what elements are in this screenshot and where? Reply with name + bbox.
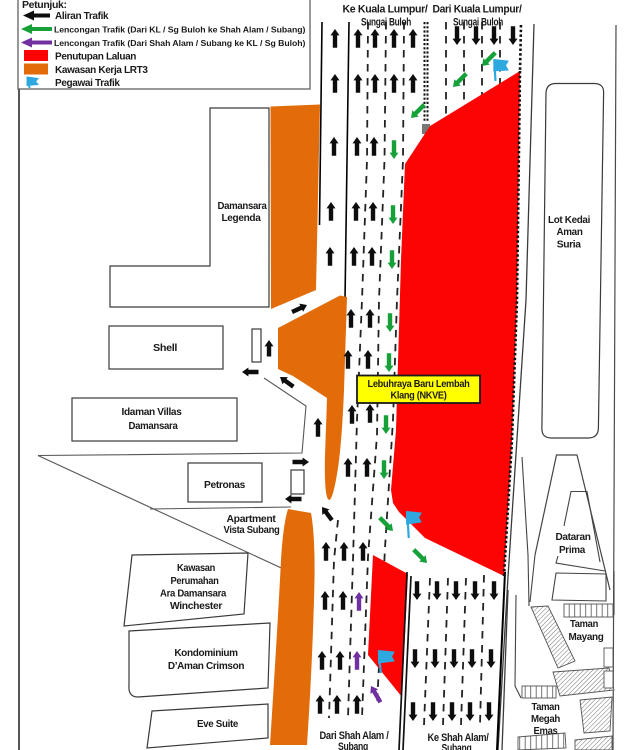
svg-text:Sungai Buloh: Sungai Buloh xyxy=(361,17,411,29)
svg-text:Lot Kedai: Lot Kedai xyxy=(548,214,590,226)
svg-text:Legenda: Legenda xyxy=(222,212,261,224)
svg-text:Aliran Trafik: Aliran Trafik xyxy=(55,11,109,22)
svg-text:Perumahan: Perumahan xyxy=(171,575,219,587)
svg-text:Kondominium: Kondominium xyxy=(174,648,238,659)
svg-text:Kawasan Kerja LRT3: Kawasan Kerja LRT3 xyxy=(55,65,148,76)
svg-text:Taman: Taman xyxy=(570,618,598,630)
svg-text:Petronas: Petronas xyxy=(204,479,245,491)
svg-text:Dari Kuala Lumpur/: Dari Kuala Lumpur/ xyxy=(433,4,522,16)
svg-text:Dataran: Dataran xyxy=(556,531,591,543)
svg-text:Eve Suite: Eve Suite xyxy=(197,718,238,730)
svg-text:Suria: Suria xyxy=(557,239,581,251)
svg-text:Ke Kuala Lumpur/: Ke Kuala Lumpur/ xyxy=(343,4,428,16)
svg-text:Shell: Shell xyxy=(153,342,177,354)
svg-text:Penutupan Laluan: Penutupan Laluan xyxy=(55,52,136,63)
svg-text:Pegawai Trafik: Pegawai Trafik xyxy=(55,78,120,89)
svg-text:Megah: Megah xyxy=(531,713,560,725)
svg-text:D’Aman Crimson: D’Aman Crimson xyxy=(168,661,244,672)
svg-text:Prima: Prima xyxy=(559,544,585,556)
svg-text:Mayang: Mayang xyxy=(569,631,604,643)
svg-text:Ara Damansara: Ara Damansara xyxy=(160,588,226,600)
svg-text:Subang: Subang xyxy=(338,741,368,750)
svg-text:Petunjuk:: Petunjuk: xyxy=(22,0,67,11)
svg-text:Damansara: Damansara xyxy=(129,420,178,432)
svg-text:Subang: Subang xyxy=(442,743,472,750)
svg-text:Idaman Villas: Idaman Villas xyxy=(122,406,182,418)
svg-text:Vista Subang: Vista Subang xyxy=(224,524,280,536)
svg-text:Aman: Aman xyxy=(557,226,583,238)
svg-text:Lencongan Trafik (Dari Shah Al: Lencongan Trafik (Dari Shah Alam / Suban… xyxy=(54,38,305,48)
svg-text:Damansara: Damansara xyxy=(218,200,267,212)
svg-text:Sungai Buloh: Sungai Buloh xyxy=(453,17,503,29)
svg-text:Lencongan Trafik (Dari KL / Sg: Lencongan Trafik (Dari KL / Sg Buloh ke … xyxy=(54,25,305,35)
svg-text:Lebuhraya Baru Lembah: Lebuhraya Baru Lembah xyxy=(368,378,470,390)
svg-text:Emas: Emas xyxy=(534,725,558,737)
svg-text:Klang (NKVE): Klang (NKVE) xyxy=(391,390,447,402)
svg-text:Winchester: Winchester xyxy=(170,600,222,612)
svg-text:Taman: Taman xyxy=(532,701,560,713)
svg-text:Kawasan: Kawasan xyxy=(177,562,215,574)
